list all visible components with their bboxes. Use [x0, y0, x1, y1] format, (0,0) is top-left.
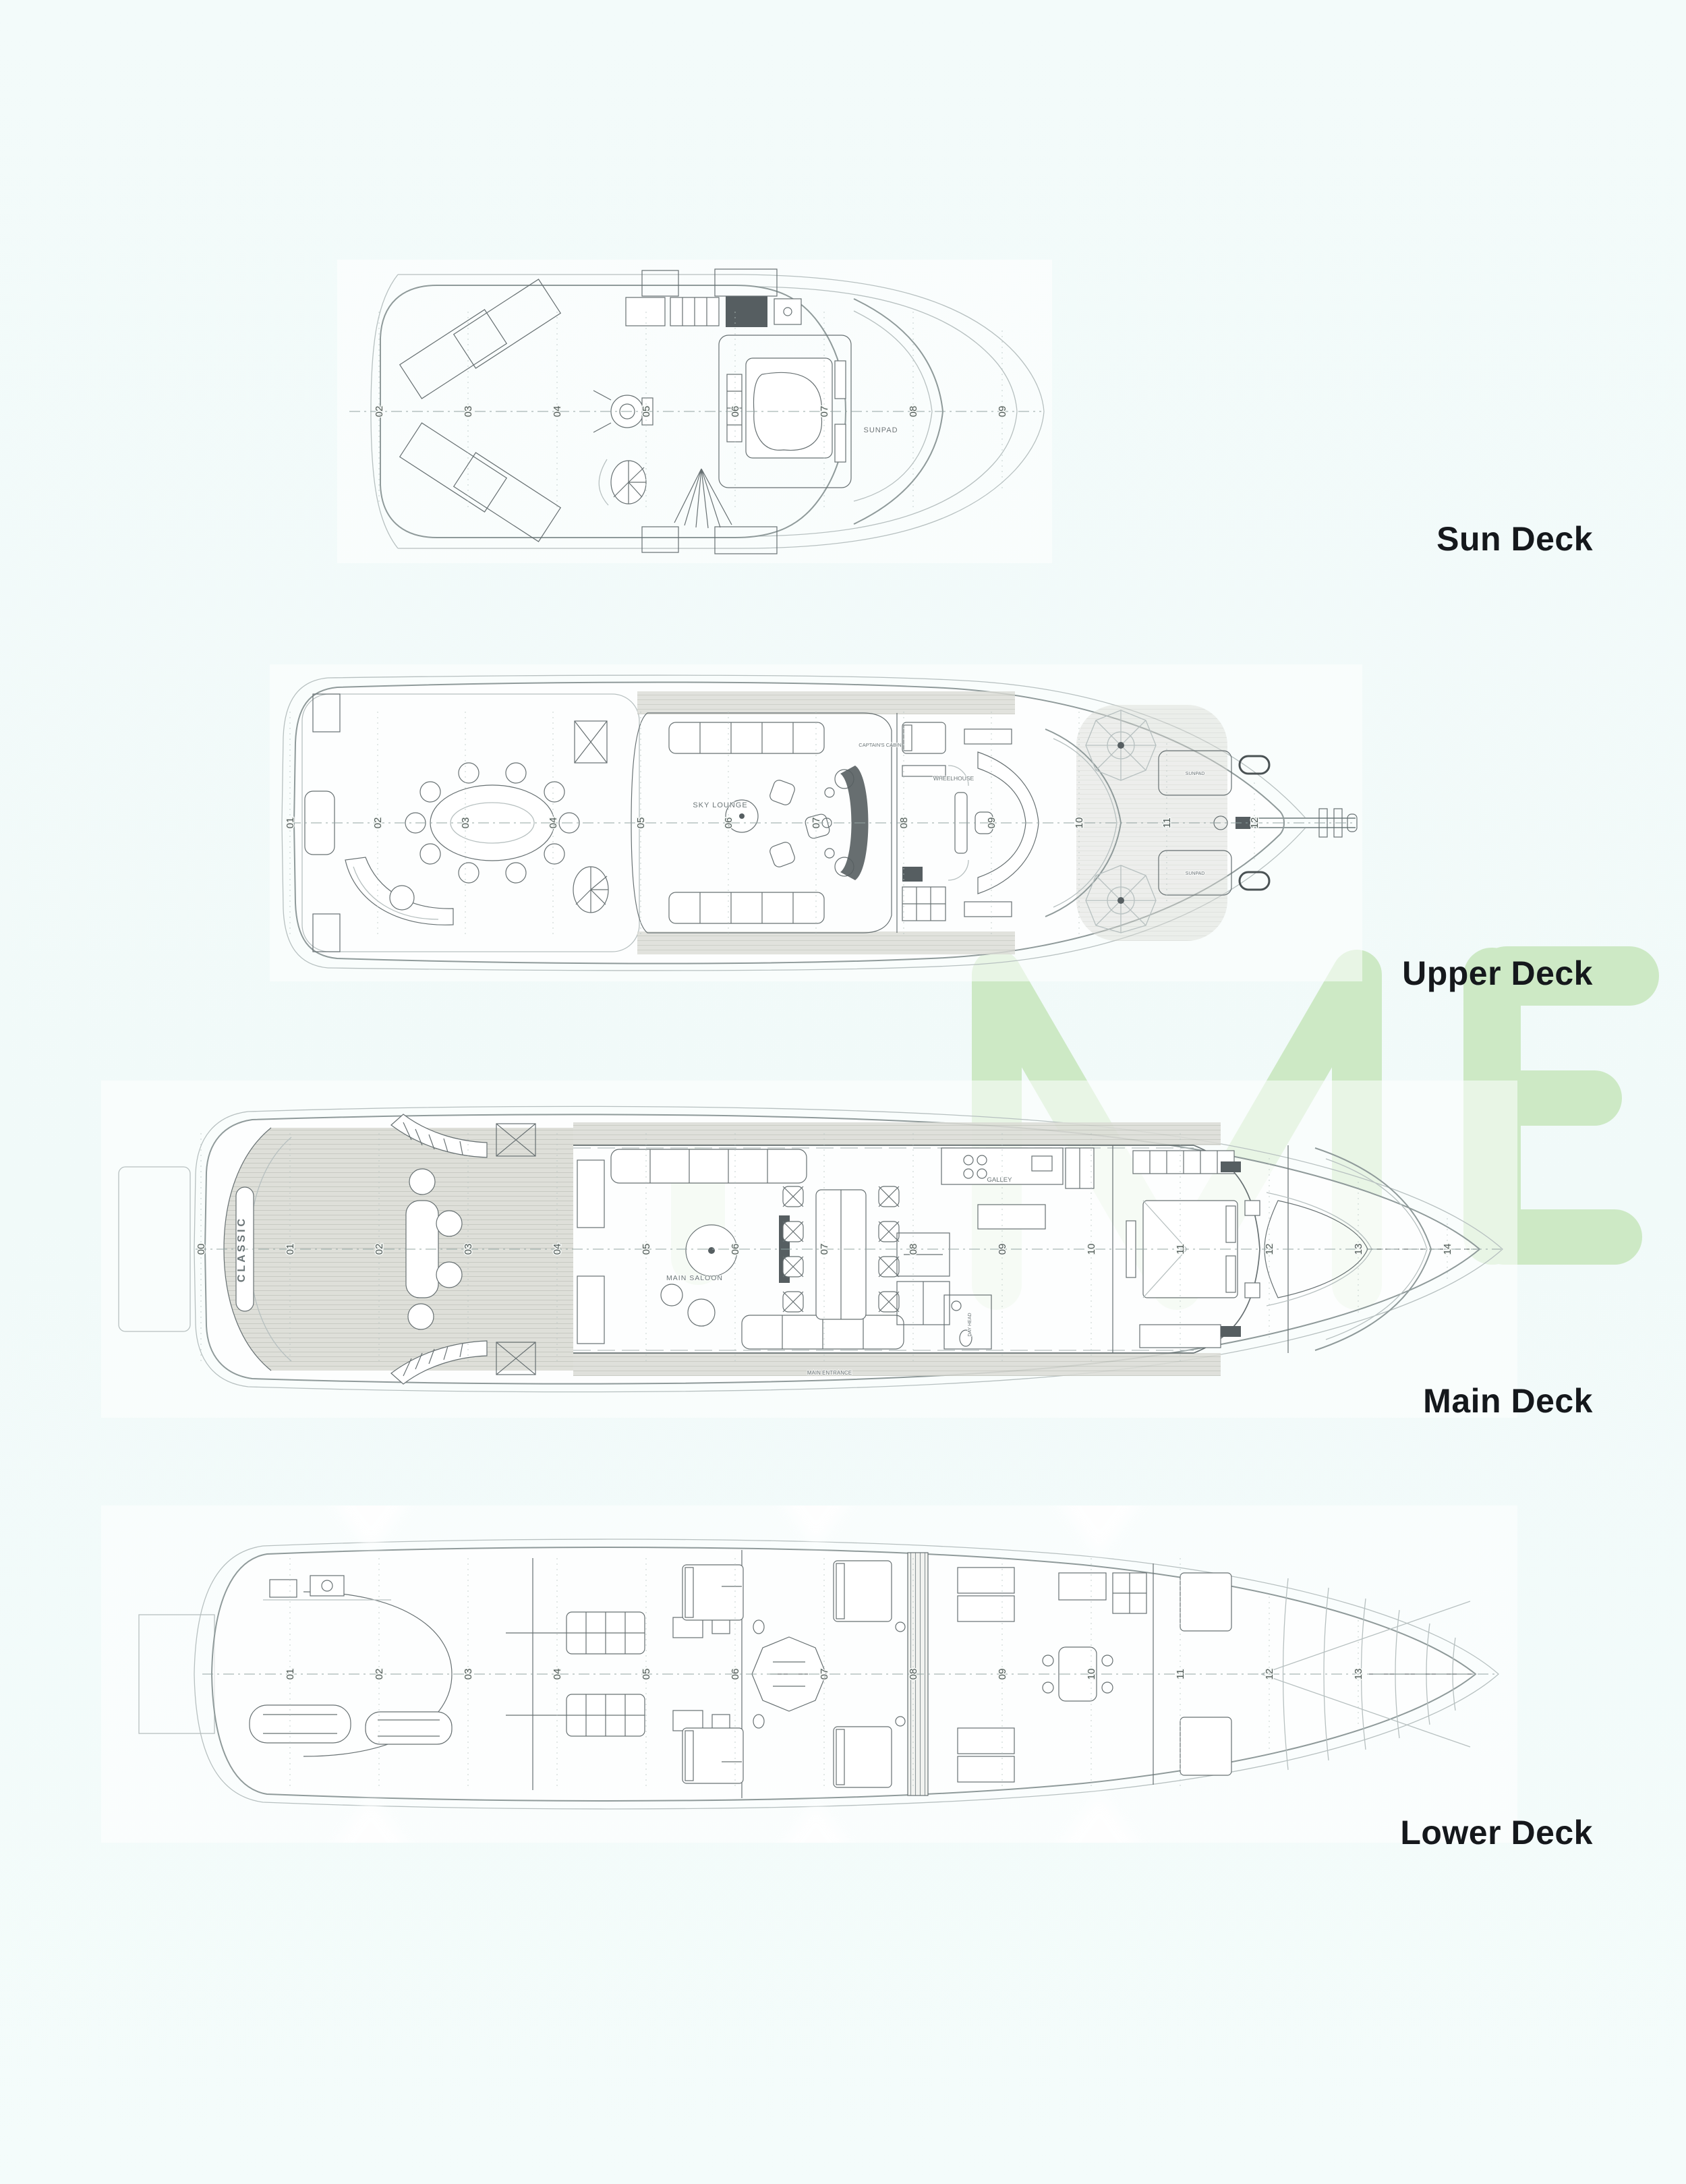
svg-text:03: 03 — [460, 817, 471, 829]
svg-text:12: 12 — [1249, 817, 1260, 829]
svg-text:01: 01 — [285, 817, 296, 829]
svg-text:04: 04 — [552, 1669, 563, 1680]
deck-label-upper: Upper Deck — [1402, 954, 1593, 993]
windlass — [1221, 1161, 1241, 1172]
svg-text:SUNPAD: SUNPAD — [863, 426, 898, 434]
room-labels: SUNPAD — [863, 426, 898, 434]
svg-text:08: 08 — [908, 406, 919, 418]
svg-text:06: 06 — [730, 406, 741, 418]
main-deck-plan: 000102030405060708091011121314 CLASSICMA… — [101, 1081, 1517, 1421]
svg-text:DAY HEAD: DAY HEAD — [968, 1313, 972, 1336]
svg-text:13: 13 — [1353, 1244, 1364, 1255]
deck-label-sun: Sun Deck — [1436, 519, 1593, 558]
svg-text:01: 01 — [285, 1244, 296, 1255]
svg-text:SUNPAD: SUNPAD — [1186, 871, 1205, 876]
svg-text:03: 03 — [463, 1244, 474, 1255]
svg-text:MAIN ENTRANCE: MAIN ENTRANCE — [807, 1370, 852, 1376]
svg-text:SKY LOUNGE: SKY LOUNGE — [693, 801, 747, 809]
svg-text:02: 02 — [374, 406, 385, 418]
svg-text:MAIN SALOON: MAIN SALOON — [666, 1274, 723, 1282]
svg-text:03: 03 — [463, 1669, 474, 1680]
lower-deck-plan: 01020304050607080910111213 — [101, 1505, 1517, 1846]
svg-text:09: 09 — [997, 406, 1008, 418]
yacht-deck-plans-page: 0203040506070809 SUNPAD Sun Deck — [0, 0, 1686, 2184]
svg-text:12: 12 — [1264, 1244, 1275, 1255]
svg-text:02: 02 — [372, 817, 384, 829]
svg-text:10: 10 — [1086, 1669, 1097, 1680]
svg-text:04: 04 — [548, 817, 559, 829]
svg-text:02: 02 — [374, 1244, 385, 1255]
svg-text:WHEELHOUSE: WHEELHOUSE — [933, 775, 975, 782]
svg-text:01: 01 — [285, 1669, 296, 1680]
svg-text:CLASSIC: CLASSIC — [236, 1216, 248, 1282]
svg-text:07: 07 — [819, 406, 830, 418]
svg-text:GALLEY: GALLEY — [987, 1176, 1013, 1184]
svg-text:06: 06 — [723, 817, 734, 829]
svg-text:11: 11 — [1175, 1244, 1186, 1255]
svg-text:09: 09 — [986, 817, 997, 829]
deck-label-main: Main Deck — [1423, 1381, 1593, 1420]
svg-text:07: 07 — [811, 817, 822, 829]
sun-deck-plan: 0203040506070809 SUNPAD — [337, 260, 1052, 567]
svg-text:05: 05 — [641, 406, 652, 418]
svg-text:13: 13 — [1353, 1669, 1364, 1680]
svg-text:07: 07 — [819, 1244, 830, 1255]
svg-text:06: 06 — [730, 1244, 741, 1255]
svg-text:04: 04 — [552, 406, 563, 418]
svg-text:07: 07 — [819, 1669, 830, 1680]
svg-text:05: 05 — [641, 1244, 652, 1255]
svg-text:SUNPAD: SUNPAD — [1186, 772, 1205, 776]
svg-text:05: 05 — [635, 817, 647, 829]
svg-text:11: 11 — [1175, 1669, 1186, 1679]
svg-text:10: 10 — [1086, 1244, 1097, 1255]
svg-text:CAPTAIN'S CABIN: CAPTAIN'S CABIN — [859, 742, 901, 748]
svg-text:12: 12 — [1264, 1669, 1275, 1680]
svg-text:08: 08 — [898, 817, 910, 829]
upper-deck-plan: 010203040506070809101112 SKY LOUNGECAPTA… — [270, 664, 1362, 985]
svg-text:10: 10 — [1074, 817, 1085, 829]
svg-text:08: 08 — [908, 1669, 919, 1680]
svg-text:08: 08 — [908, 1244, 919, 1255]
svg-text:05: 05 — [641, 1669, 652, 1680]
tender — [250, 1705, 351, 1743]
svg-text:02: 02 — [374, 1669, 385, 1680]
svg-text:00: 00 — [196, 1244, 207, 1255]
svg-text:04: 04 — [552, 1244, 563, 1255]
svg-text:06: 06 — [730, 1669, 741, 1680]
svg-text:03: 03 — [463, 406, 474, 418]
svg-text:14: 14 — [1442, 1244, 1453, 1255]
jet-tender — [366, 1712, 452, 1744]
deck-label-lower: Lower Deck — [1400, 1813, 1593, 1852]
svg-text:09: 09 — [997, 1669, 1008, 1680]
svg-text:09: 09 — [997, 1244, 1008, 1255]
svg-text:11: 11 — [1161, 817, 1173, 828]
